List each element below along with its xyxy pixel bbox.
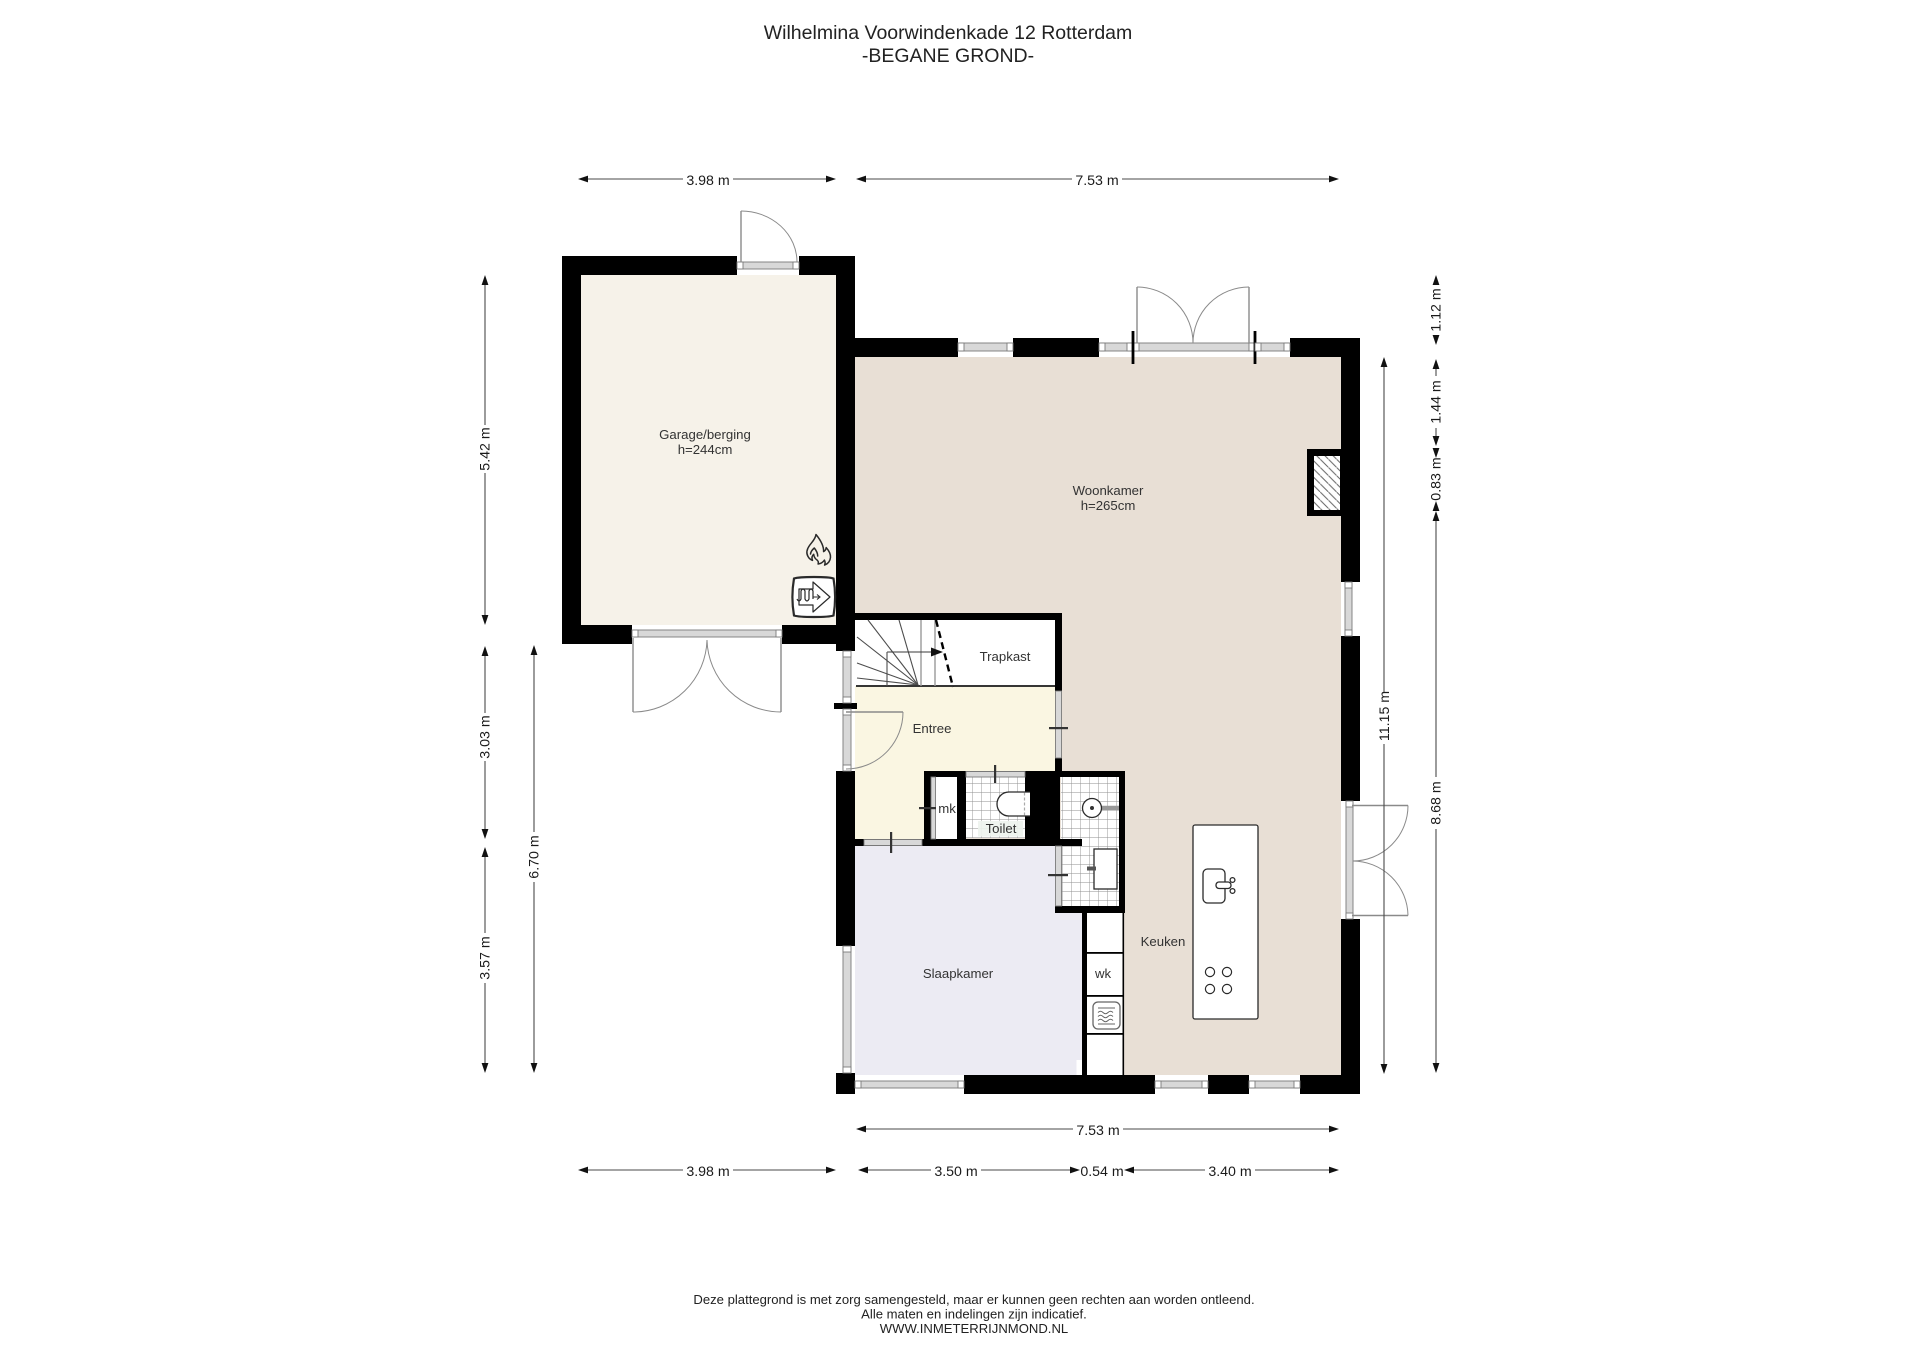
svg-text:0.54 m: 0.54 m <box>1080 1164 1123 1180</box>
svg-text:Entree: Entree <box>913 721 952 736</box>
svg-text:wk: wk <box>1094 966 1112 981</box>
svg-text:Woonkamer: Woonkamer <box>1073 483 1144 498</box>
svg-text:8.68 m: 8.68 m <box>1429 781 1445 824</box>
svg-text:6.70 m: 6.70 m <box>527 835 543 878</box>
svg-text:Trapkast: Trapkast <box>980 649 1031 664</box>
svg-text:3.40 m: 3.40 m <box>1208 1164 1251 1180</box>
svg-text:Toilet: Toilet <box>986 821 1017 836</box>
svg-text:Garage/berging: Garage/berging <box>659 427 751 442</box>
svg-text:Deze plattegrond is met zorg s: Deze plattegrond is met zorg samengestel… <box>693 1292 1254 1307</box>
svg-text:3.57 m: 3.57 m <box>478 936 494 979</box>
svg-text:3.98 m: 3.98 m <box>686 173 729 189</box>
svg-text:Wilhelmina Voorwindenkade 12 R: Wilhelmina Voorwindenkade 12 Rotterdam <box>764 22 1133 44</box>
svg-text:0.83 m: 0.83 m <box>1429 457 1445 500</box>
svg-text:h=244cm: h=244cm <box>678 442 733 457</box>
svg-text:1.12 m: 1.12 m <box>1429 288 1445 331</box>
svg-text:5.42 m: 5.42 m <box>478 427 494 470</box>
svg-text:3.03 m: 3.03 m <box>478 715 494 758</box>
svg-text:7.53 m: 7.53 m <box>1075 173 1118 189</box>
svg-text:1.44 m: 1.44 m <box>1429 380 1445 423</box>
svg-text:7.53 m: 7.53 m <box>1076 1123 1119 1139</box>
svg-text:3.50 m: 3.50 m <box>934 1164 977 1180</box>
svg-text:-BEGANE GROND-: -BEGANE GROND- <box>862 45 1034 67</box>
svg-text:3.98 m: 3.98 m <box>686 1164 729 1180</box>
svg-text:mk: mk <box>938 801 956 816</box>
svg-text:11.15 m: 11.15 m <box>1377 691 1393 741</box>
svg-text:Alle maten en indelingen zijn: Alle maten en indelingen zijn indicatief… <box>861 1307 1087 1322</box>
svg-text:WWW.INMETERRIJNMOND.NL: WWW.INMETERRIJNMOND.NL <box>880 1321 1068 1336</box>
svg-text:Slaapkamer: Slaapkamer <box>923 966 994 981</box>
svg-text:h=265cm: h=265cm <box>1081 498 1136 513</box>
svg-text:Keuken: Keuken <box>1141 934 1186 949</box>
